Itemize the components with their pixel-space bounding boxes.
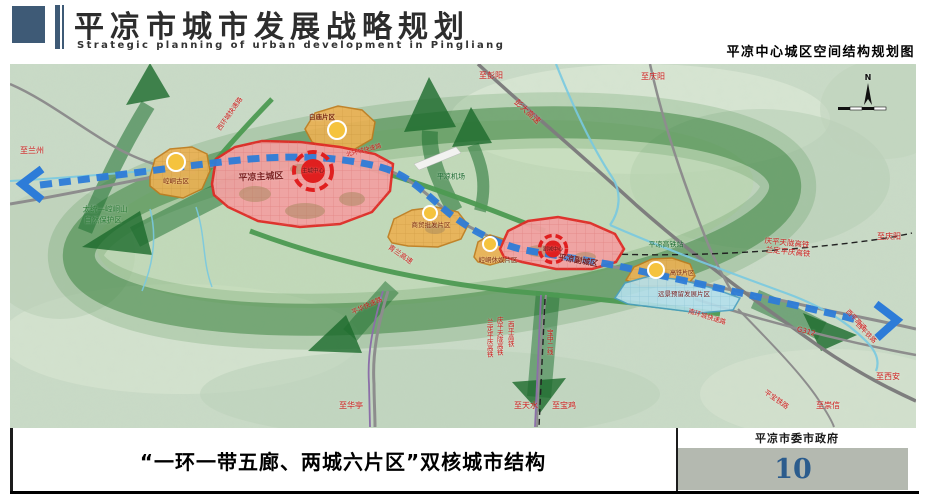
header-divider-bar-thin bbox=[62, 5, 64, 49]
header-divider-bar bbox=[55, 5, 60, 49]
structure-caption: “一环一带五廊、两城六片区”双核城市结构 bbox=[10, 430, 676, 490]
map-canvas bbox=[10, 64, 916, 428]
page-number: 10 bbox=[678, 448, 908, 490]
agency-name: 平凉市委市政府 bbox=[678, 428, 916, 448]
agency-box: 平凉市委市政府 10 bbox=[676, 428, 916, 492]
bottom-rule bbox=[10, 491, 919, 494]
scale-bar-icon bbox=[838, 107, 886, 110]
page-subtitle-en: Strategic planning of urban development … bbox=[77, 40, 505, 51]
logo-square bbox=[12, 6, 45, 43]
planning-map bbox=[10, 64, 916, 428]
map-sheet-title: 平凉中心城区空间结构规划图 bbox=[726, 41, 915, 60]
header: 平凉市城市发展战略规划 Strategic planning of urban … bbox=[0, 0, 925, 63]
page: 平凉市城市发展战略规划 Strategic planning of urban … bbox=[0, 0, 925, 500]
